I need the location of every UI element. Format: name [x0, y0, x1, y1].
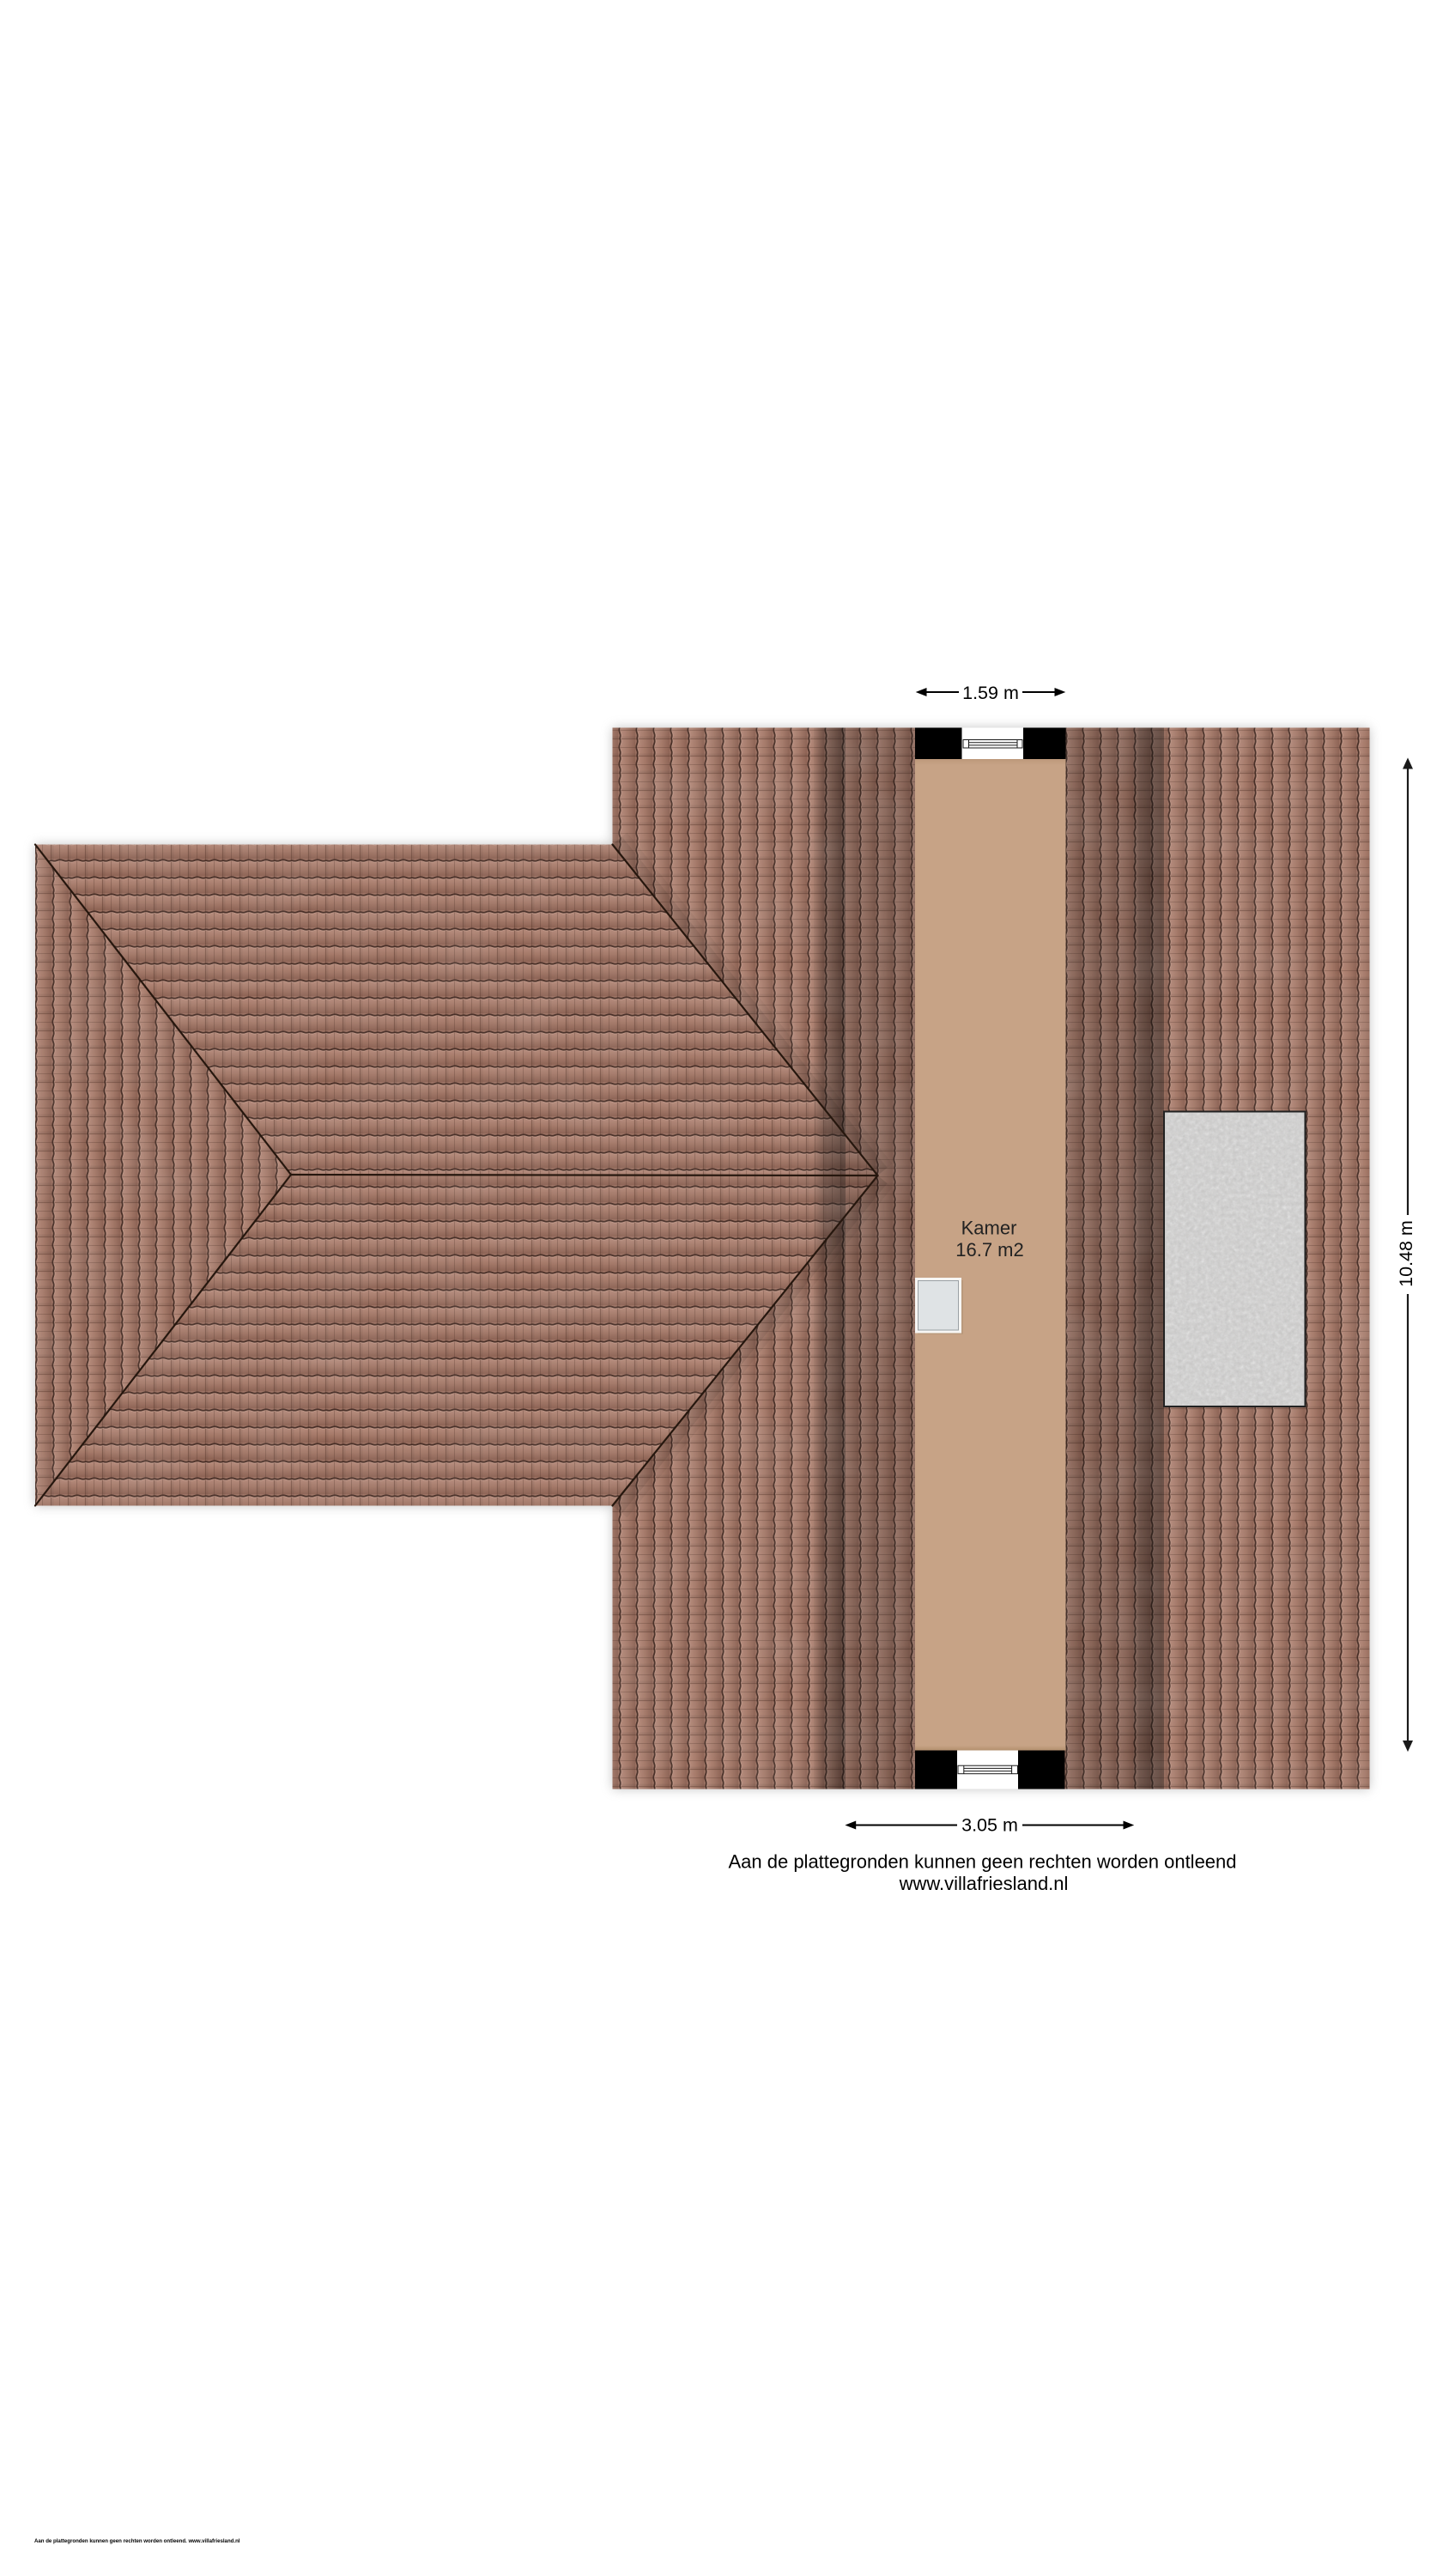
svg-text:1.59 m: 1.59 m	[962, 683, 1019, 703]
svg-text:Kamer: Kamer	[961, 1218, 1017, 1239]
svg-text:16.7 m2: 16.7 m2	[955, 1239, 1024, 1261]
svg-text:3.05 m: 3.05 m	[961, 1815, 1018, 1836]
svg-text:10.48 m: 10.48 m	[1396, 1220, 1416, 1287]
svg-text:www.villafriesland.nl: www.villafriesland.nl	[899, 1873, 1069, 1894]
svg-text:Aan de plattegronden kunnen ge: Aan de plattegronden kunnen geen rechten…	[34, 2538, 240, 2544]
svg-text:Aan de plattegronden kunnen ge: Aan de plattegronden kunnen geen rechten…	[728, 1851, 1236, 1873]
